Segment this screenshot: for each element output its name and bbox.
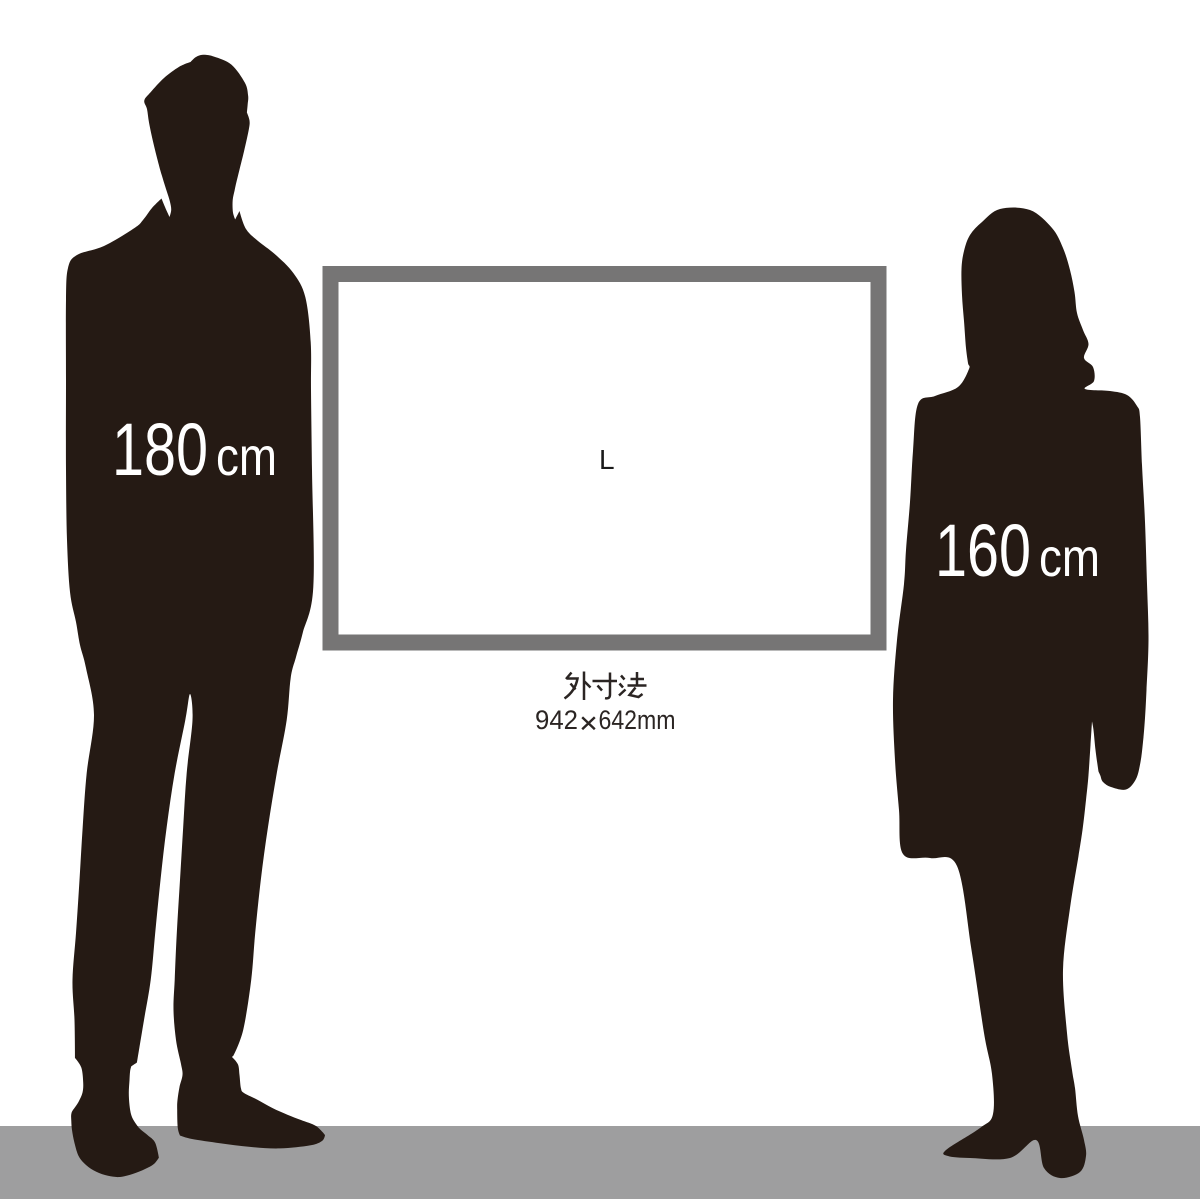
- svg-text:942: 942: [535, 705, 578, 735]
- svg-text:180: 180: [112, 408, 208, 491]
- svg-text:L: L: [599, 444, 615, 475]
- svg-text:cm: cm: [216, 427, 277, 487]
- svg-text:642mm: 642mm: [599, 705, 676, 735]
- svg-text:cm: cm: [1039, 528, 1100, 588]
- svg-text:160: 160: [935, 509, 1031, 592]
